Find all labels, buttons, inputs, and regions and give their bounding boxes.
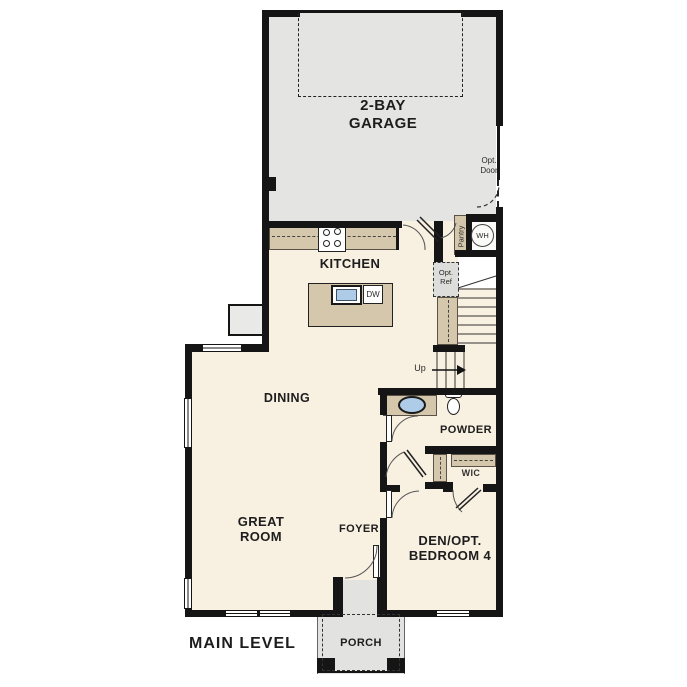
floor-plan: DW Pantry Opt. Ref: [0, 0, 687, 687]
opt-door-label-line2: Door: [480, 166, 497, 175]
vestibule-floor: [343, 580, 377, 613]
burner-icon: [323, 240, 330, 247]
counter-end-cap: [396, 225, 399, 250]
wh-north-wall: [466, 214, 503, 222]
den-label: DEN/OPT. BEDROOM 4: [375, 533, 525, 564]
great-room-label-line1: GREAT: [238, 514, 285, 529]
burner-icon: [334, 228, 341, 235]
opt-door-opening: [497, 180, 499, 207]
garage-east-wall: [496, 10, 503, 126]
main-level-label: MAIN LEVEL: [189, 635, 309, 654]
window: [259, 610, 291, 617]
den-door-leaf: [386, 490, 392, 518]
powder-sink: [398, 396, 426, 414]
great-room-label: GREAT ROOM: [211, 514, 311, 545]
den-label-line2: BEDROOM 4: [409, 548, 491, 563]
porch-front-edge: [317, 671, 405, 673]
window: [202, 344, 242, 352]
opt-door-label-line1: Opt.: [481, 156, 496, 165]
powder-south-wall: [425, 446, 503, 454]
garage-pilaster: [262, 177, 276, 191]
kitchen-label: KITCHEN: [300, 256, 400, 271]
west-exterior-wall: [185, 344, 192, 617]
wic-south-wall-right: [483, 484, 503, 492]
den-label-line1: DEN/OPT.: [418, 533, 481, 548]
dining-label: DINING: [237, 391, 337, 406]
island-sink: [331, 285, 362, 305]
toilet-bowl: [447, 398, 460, 415]
water-heater-label: WH: [472, 231, 493, 240]
window: [184, 398, 192, 448]
half-wall-dashline: [448, 300, 449, 342]
garage-door-outline: [298, 13, 463, 97]
opt-ref-label: Opt.: [439, 268, 453, 277]
powder-label: POWDER: [416, 424, 516, 437]
opt-door-label: Opt. Door: [469, 156, 509, 175]
wic-shelf-dashline: [454, 460, 493, 461]
wic-south-wall-left: [443, 484, 453, 492]
burner-icon: [334, 240, 341, 247]
garage-west-wall: [262, 10, 269, 228]
powder-door-leaf: [386, 415, 392, 442]
sink-basin: [336, 289, 357, 301]
garage-label-line2: GARAGE: [349, 115, 417, 132]
fireplace-bumpout: [228, 304, 266, 336]
hall-west-wall-b: [380, 442, 387, 490]
burner-icon: [323, 229, 330, 236]
opt-ref-label: Ref: [440, 277, 452, 286]
dishwasher: DW: [363, 285, 383, 304]
water-heater: WH: [471, 224, 494, 247]
garage-kitchen-wall: [262, 221, 402, 228]
kitchen-west-wall: [262, 228, 269, 352]
window: [225, 610, 258, 617]
wic-label: WIC: [441, 468, 501, 479]
stove: [318, 224, 346, 252]
stair-mid-wall: [433, 345, 465, 352]
hall-west-wall-a: [380, 395, 387, 415]
powder-north-wall: [378, 388, 503, 395]
great-room-floor: [189, 348, 383, 613]
wh-south-wall: [455, 250, 503, 257]
vestibule-west-wall: [333, 577, 343, 617]
great-room-label-line2: ROOM: [240, 529, 282, 544]
window: [436, 610, 470, 617]
wic-shelf: [451, 454, 496, 467]
dishwasher-label: DW: [364, 290, 382, 300]
garage-label: 2-BAY GARAGE: [303, 97, 463, 132]
vestibule-east-wall: [377, 577, 387, 617]
porch-label: PORCH: [321, 637, 401, 650]
window: [184, 578, 192, 609]
stair-half-wall: [437, 297, 458, 345]
door-post: [434, 221, 443, 262]
up-label: Up: [408, 363, 432, 374]
garage-label-line1: 2-BAY: [360, 97, 406, 114]
optional-fridge: Opt. Ref: [433, 262, 459, 297]
